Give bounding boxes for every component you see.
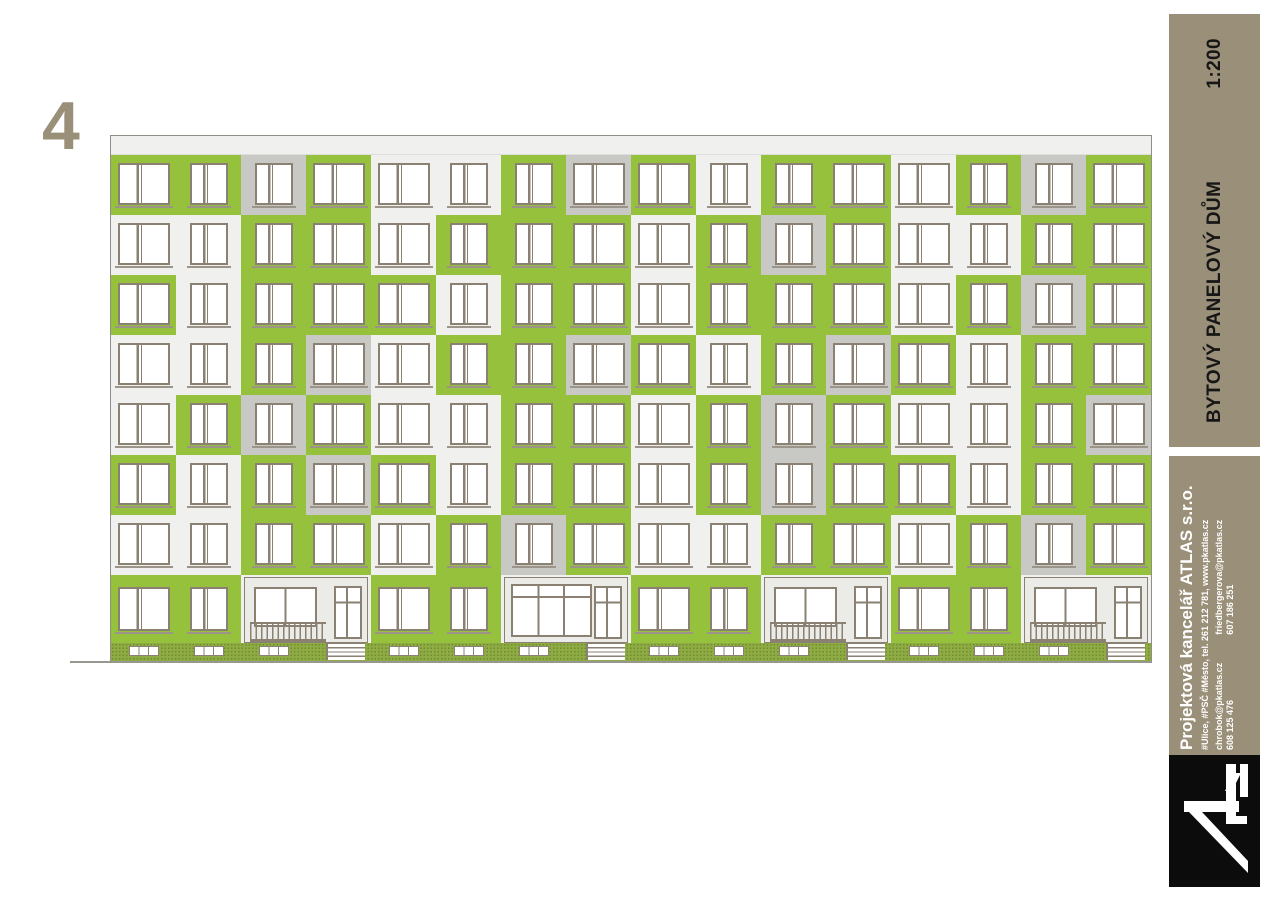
contact-2-phone: 607 186 251	[1225, 520, 1236, 635]
facade-panel	[501, 155, 566, 215]
window	[515, 343, 553, 385]
window	[118, 523, 170, 565]
facade-panel	[1086, 515, 1151, 575]
facade-panel	[1021, 155, 1086, 215]
entrance-bay	[1021, 575, 1151, 643]
ground-line	[70, 661, 1152, 663]
contact-2-email: friedbergerova@pkatlas.cz	[1214, 520, 1225, 635]
facade-panel	[956, 455, 1021, 515]
window	[1093, 343, 1145, 385]
window	[833, 343, 885, 385]
floor-row-6	[111, 455, 1151, 515]
facade-panel	[111, 215, 176, 275]
facade-panel	[891, 395, 956, 455]
facade-panel	[436, 275, 501, 335]
plinth-slot	[956, 643, 1021, 661]
facade-panel	[436, 395, 501, 455]
entrance-door	[854, 586, 882, 639]
facade-panel	[436, 335, 501, 395]
window	[710, 163, 748, 205]
entrance-bay-frame	[764, 577, 888, 643]
plinth-slot	[1021, 643, 1086, 661]
entrance-window	[254, 587, 317, 627]
entrance-door	[1114, 586, 1142, 639]
facade-panel	[111, 155, 176, 215]
window	[255, 163, 293, 205]
plinth-band	[111, 643, 1151, 661]
facade-panel	[241, 515, 306, 575]
window	[118, 403, 170, 445]
window	[833, 523, 885, 565]
entrance-stairs	[846, 643, 885, 660]
window	[118, 587, 170, 631]
window	[450, 283, 488, 325]
facade-panel	[826, 395, 891, 455]
facade-panel	[761, 455, 826, 515]
window	[515, 463, 553, 505]
window	[313, 223, 365, 265]
window	[898, 223, 950, 265]
window	[970, 283, 1008, 325]
facade-panel	[111, 395, 176, 455]
facade-panel	[1021, 335, 1086, 395]
window	[118, 343, 170, 385]
facade-panel	[566, 335, 631, 395]
facade-panel	[501, 275, 566, 335]
basement-window	[779, 646, 809, 656]
facade-panel	[631, 395, 696, 455]
window	[1035, 283, 1073, 325]
facade-panel	[176, 455, 241, 515]
window	[573, 343, 625, 385]
window	[970, 587, 1008, 631]
window	[190, 587, 228, 631]
facade-panel	[566, 515, 631, 575]
window	[515, 403, 553, 445]
window	[190, 223, 228, 265]
plinth-slot	[111, 643, 176, 661]
facade-panel	[566, 455, 631, 515]
window	[573, 283, 625, 325]
window	[378, 223, 430, 265]
plinth-slot	[436, 643, 501, 661]
facade-panel	[566, 395, 631, 455]
facade-panel	[696, 275, 761, 335]
facade-panel	[1086, 155, 1151, 215]
facade-panel	[111, 275, 176, 335]
floor-row-4	[111, 335, 1151, 395]
facade-panel	[566, 155, 631, 215]
window	[515, 223, 553, 265]
plinth-slot	[891, 643, 956, 661]
window	[190, 163, 228, 205]
facade-panel	[566, 215, 631, 275]
facade-panel	[501, 215, 566, 275]
facade-panel	[956, 275, 1021, 335]
window	[1093, 523, 1145, 565]
basement-window	[259, 646, 289, 656]
window	[450, 523, 488, 565]
window	[573, 463, 625, 505]
facade-panel	[501, 455, 566, 515]
window	[450, 163, 488, 205]
facade-panel	[826, 455, 891, 515]
window	[313, 463, 365, 505]
drawing-title: BYTOVÝ PANELOVÝ DŮM	[1204, 181, 1226, 423]
plinth-slot	[631, 643, 696, 661]
facade-panel	[306, 395, 371, 455]
window	[118, 463, 170, 505]
plinth-slot	[501, 643, 566, 661]
plinth-slot	[176, 643, 241, 661]
facade-panel	[111, 575, 176, 643]
facade-panel	[956, 515, 1021, 575]
facade-panel	[891, 155, 956, 215]
basement-window	[194, 646, 224, 656]
porch-railing	[250, 622, 326, 642]
window	[638, 163, 690, 205]
sheet-number: 4	[42, 92, 80, 160]
window	[515, 163, 553, 205]
facade-panel	[1086, 455, 1151, 515]
window	[313, 403, 365, 445]
basement-window	[389, 646, 419, 656]
facade-panel	[631, 335, 696, 395]
window	[710, 223, 748, 265]
parapet-band	[111, 136, 1151, 155]
window	[255, 403, 293, 445]
facade-panel	[241, 455, 306, 515]
facade-panel	[371, 515, 436, 575]
facade-panel	[436, 515, 501, 575]
entrance-stairs	[1106, 643, 1145, 660]
basement-window	[1039, 646, 1069, 656]
facade-panel	[371, 155, 436, 215]
facade-panel	[111, 335, 176, 395]
facade-panel	[436, 155, 501, 215]
window	[833, 223, 885, 265]
window	[1035, 163, 1073, 205]
window	[1093, 463, 1145, 505]
floor-row-2	[111, 215, 1151, 275]
window	[898, 403, 950, 445]
facade-panel	[1021, 455, 1086, 515]
window	[378, 587, 430, 631]
window	[1093, 283, 1145, 325]
entrance-window	[774, 587, 837, 627]
window	[775, 283, 813, 325]
window	[970, 523, 1008, 565]
facade-panel	[891, 575, 956, 643]
window	[118, 163, 170, 205]
window	[638, 587, 690, 631]
facade-panel	[891, 275, 956, 335]
facade-panel	[891, 455, 956, 515]
facade-panel	[241, 215, 306, 275]
window	[450, 343, 488, 385]
facade-panel	[761, 335, 826, 395]
titleblock-company-band: Projektová kancelář ATLAS s.r.o. #Ulice,…	[1169, 456, 1260, 755]
window	[898, 163, 950, 205]
entrance-bay	[761, 575, 891, 643]
facade-panel	[696, 215, 761, 275]
facade-panel	[371, 575, 436, 643]
window	[515, 283, 553, 325]
window	[775, 223, 813, 265]
window	[1035, 523, 1073, 565]
porch-railing	[770, 622, 846, 642]
window	[118, 283, 170, 325]
window	[710, 283, 748, 325]
plinth-slot	[696, 643, 761, 661]
window	[638, 343, 690, 385]
facade-panel	[436, 455, 501, 515]
window	[378, 283, 430, 325]
facade-panel	[826, 275, 891, 335]
window	[970, 463, 1008, 505]
plinth-slot	[761, 643, 826, 661]
facade-panel	[696, 155, 761, 215]
facade-panel	[371, 395, 436, 455]
facade-panel	[176, 575, 241, 643]
window	[255, 463, 293, 505]
window	[378, 403, 430, 445]
facade-panel	[1021, 215, 1086, 275]
ground-floor	[111, 575, 1151, 643]
facade-panel	[1021, 275, 1086, 335]
window	[1035, 463, 1073, 505]
window	[970, 223, 1008, 265]
facade-panel	[631, 155, 696, 215]
facade-panel	[631, 275, 696, 335]
facade-panel	[501, 335, 566, 395]
facade-panel	[891, 215, 956, 275]
entrance-door	[594, 586, 622, 639]
facade-panel	[956, 335, 1021, 395]
facade-panel	[1021, 395, 1086, 455]
facade-panel	[1086, 215, 1151, 275]
facade-panel	[176, 275, 241, 335]
window	[710, 587, 748, 631]
titleblock-title-band: BYTOVÝ PANELOVÝ DŮM 1:200	[1169, 14, 1260, 447]
facade-panel	[371, 455, 436, 515]
window	[190, 463, 228, 505]
window	[775, 523, 813, 565]
window	[1093, 163, 1145, 205]
basement-window	[909, 646, 939, 656]
facade-panel	[306, 455, 371, 515]
facade-panel	[631, 515, 696, 575]
facade-panel	[1021, 515, 1086, 575]
floor-row-5	[111, 395, 1151, 455]
plinth-slot	[371, 643, 436, 661]
floor-row-7	[111, 515, 1151, 575]
window	[255, 283, 293, 325]
facade-panel	[826, 215, 891, 275]
facade-panel	[1086, 275, 1151, 335]
window	[970, 163, 1008, 205]
facade-panel	[306, 335, 371, 395]
plinth-slot	[241, 643, 306, 661]
facade-panel	[826, 155, 891, 215]
window	[710, 463, 748, 505]
company-contacts: chrobok@pkatlas.cz 608 125 476 friedberg…	[1214, 458, 1237, 750]
window	[190, 343, 228, 385]
window	[1093, 223, 1145, 265]
window	[450, 463, 488, 505]
facade-panel	[956, 575, 1021, 643]
window	[450, 403, 488, 445]
window	[775, 163, 813, 205]
facade-panel	[241, 275, 306, 335]
window	[515, 523, 553, 565]
facade-panel	[826, 335, 891, 395]
window	[1035, 223, 1073, 265]
window	[833, 403, 885, 445]
facade-panel	[306, 215, 371, 275]
facade-panel	[761, 215, 826, 275]
facade-panel	[501, 395, 566, 455]
window	[378, 463, 430, 505]
facade-panel	[176, 215, 241, 275]
facade-panel	[761, 275, 826, 335]
facade-panel	[696, 515, 761, 575]
window	[638, 403, 690, 445]
entrance-bay-frame	[504, 577, 628, 643]
entrance-stairs	[326, 643, 365, 660]
window	[255, 523, 293, 565]
floor-row-1	[111, 155, 1151, 215]
window	[450, 223, 488, 265]
window	[898, 283, 950, 325]
facade-panel	[111, 455, 176, 515]
facade-panel	[631, 215, 696, 275]
facade-panel	[761, 395, 826, 455]
window	[255, 223, 293, 265]
window	[833, 283, 885, 325]
facade-panel	[176, 155, 241, 215]
window	[313, 343, 365, 385]
window	[970, 403, 1008, 445]
window	[573, 523, 625, 565]
contact-2: friedbergerova@pkatlas.cz 607 186 251	[1214, 520, 1237, 635]
window	[638, 223, 690, 265]
drawing-scale: 1:200	[1204, 38, 1226, 89]
facade-panel	[436, 575, 501, 643]
window	[313, 163, 365, 205]
facade-panel	[566, 275, 631, 335]
window	[573, 403, 625, 445]
porch-railing	[1030, 622, 1106, 642]
window	[1035, 403, 1073, 445]
window	[898, 523, 950, 565]
facade-panel	[891, 335, 956, 395]
facade-panel	[306, 155, 371, 215]
facade-panel	[176, 335, 241, 395]
window	[638, 523, 690, 565]
window	[1093, 403, 1145, 445]
window	[378, 163, 430, 205]
window	[313, 523, 365, 565]
facade-panel	[956, 215, 1021, 275]
entrance-window	[1034, 587, 1097, 627]
window	[190, 403, 228, 445]
facade-floors	[111, 155, 1151, 575]
window	[775, 343, 813, 385]
facade-panel	[826, 515, 891, 575]
window	[970, 343, 1008, 385]
window	[378, 343, 430, 385]
facade-panel	[891, 515, 956, 575]
facade-panel	[371, 275, 436, 335]
facade-panel	[696, 575, 761, 643]
window	[255, 343, 293, 385]
facade-panel	[696, 395, 761, 455]
building-elevation	[110, 135, 1152, 661]
facade-panel	[371, 335, 436, 395]
entrance-bay-frame	[1024, 577, 1148, 643]
basement-window	[649, 646, 679, 656]
window	[775, 463, 813, 505]
floor-row-3	[111, 275, 1151, 335]
basement-window	[519, 646, 549, 656]
window	[775, 403, 813, 445]
window	[638, 283, 690, 325]
basement-window	[974, 646, 1004, 656]
entrance-door	[334, 586, 362, 639]
facade-panel	[761, 515, 826, 575]
facade-panel	[241, 335, 306, 395]
window	[313, 283, 365, 325]
entrance-bay	[241, 575, 371, 643]
window	[710, 523, 748, 565]
window	[833, 463, 885, 505]
entrance-bay-frame	[244, 577, 368, 643]
facade-panel	[371, 215, 436, 275]
facade-panel	[956, 155, 1021, 215]
contact-1: chrobok@pkatlas.cz 608 125 476	[1214, 663, 1237, 750]
basement-window	[714, 646, 744, 656]
facade-panel	[436, 215, 501, 275]
window	[573, 163, 625, 205]
company-name: Projektová kancelář ATLAS s.r.o.	[1177, 458, 1197, 750]
facade-panel	[1086, 335, 1151, 395]
window	[898, 587, 950, 631]
entrance-storefront-window	[511, 584, 592, 637]
window	[710, 403, 748, 445]
facade-panel	[631, 575, 696, 643]
contact-1-phone: 608 125 476	[1225, 663, 1236, 750]
window	[378, 523, 430, 565]
facade-panel	[696, 455, 761, 515]
company-address: #Ulice, #PSČ #Město, tel. 261 212 781, w…	[1200, 458, 1210, 750]
window	[450, 587, 488, 631]
window	[898, 343, 950, 385]
facade-panel	[241, 155, 306, 215]
window	[833, 163, 885, 205]
window	[710, 343, 748, 385]
basement-window	[129, 646, 159, 656]
contact-1-email: chrobok@pkatlas.cz	[1214, 663, 1225, 750]
facade-panel	[1086, 395, 1151, 455]
window	[190, 523, 228, 565]
entrance-stairs	[586, 643, 625, 660]
facade-panel	[696, 335, 761, 395]
facade-panel	[241, 395, 306, 455]
facade-panel	[631, 455, 696, 515]
entrance-bay	[501, 575, 631, 643]
window	[1035, 343, 1073, 385]
